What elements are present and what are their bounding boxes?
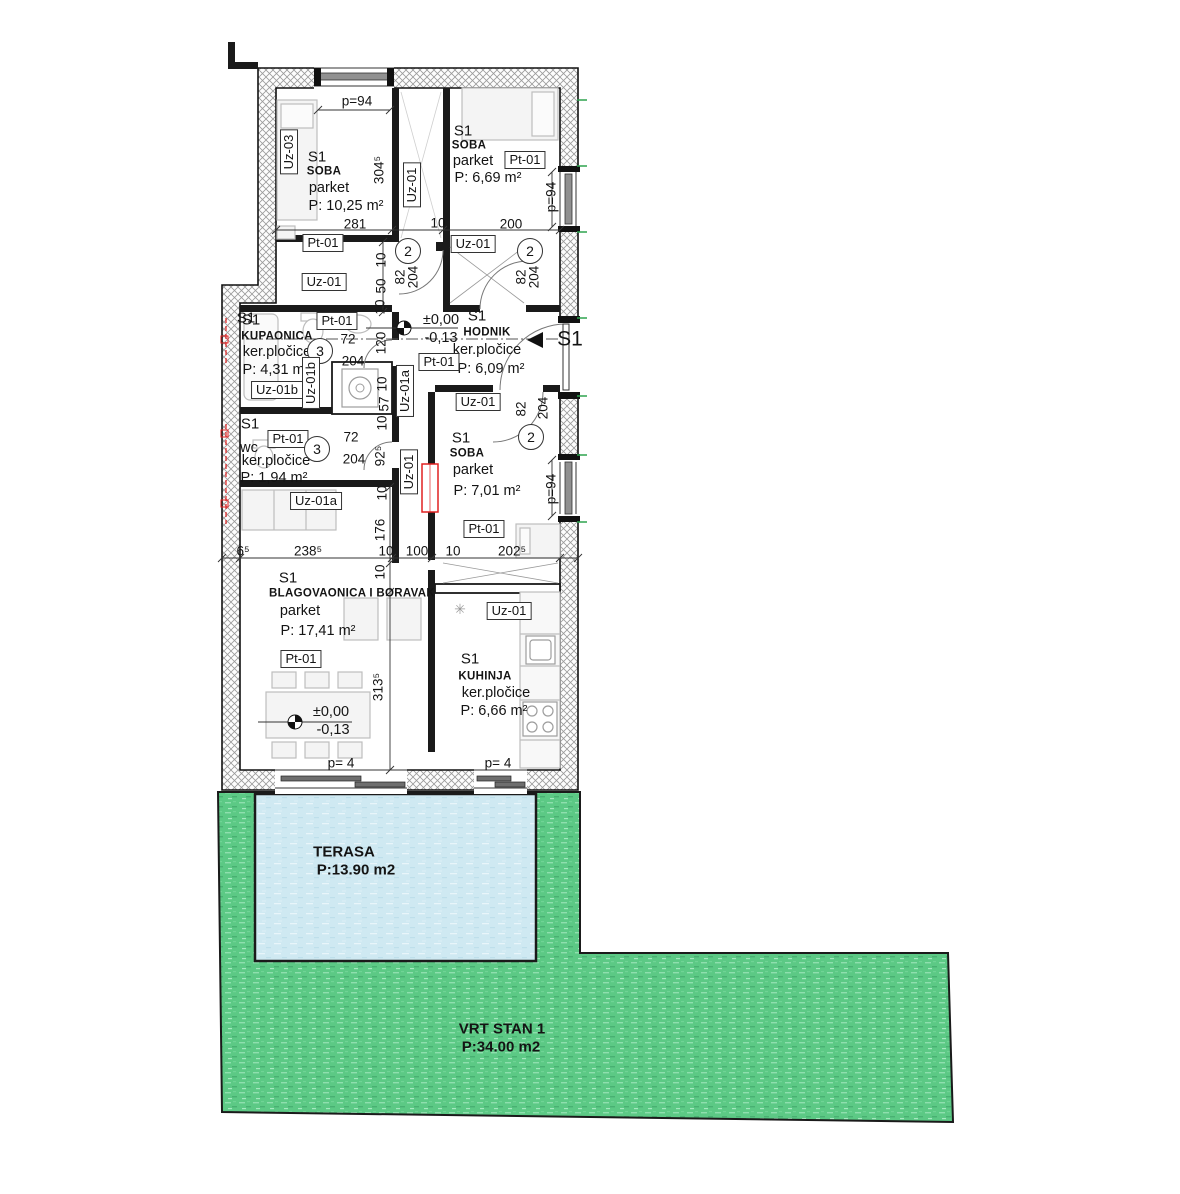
floor-plan-drawing (0, 0, 1180, 1194)
window-right-lower (556, 454, 582, 522)
sliding-door-kitchen (474, 766, 527, 794)
closet-uz01b (332, 362, 392, 414)
floor-plan-canvas: p=94Uz-03S1SOBAparketP: 10,25 m²304⁵281P… (0, 0, 1180, 1194)
sliding-door-living (275, 766, 407, 794)
terrace-area (255, 794, 536, 961)
wall-stub (228, 42, 258, 69)
section-marker-arrow-icon (527, 332, 543, 348)
window-top (314, 64, 394, 92)
window-right-upper (556, 166, 582, 232)
